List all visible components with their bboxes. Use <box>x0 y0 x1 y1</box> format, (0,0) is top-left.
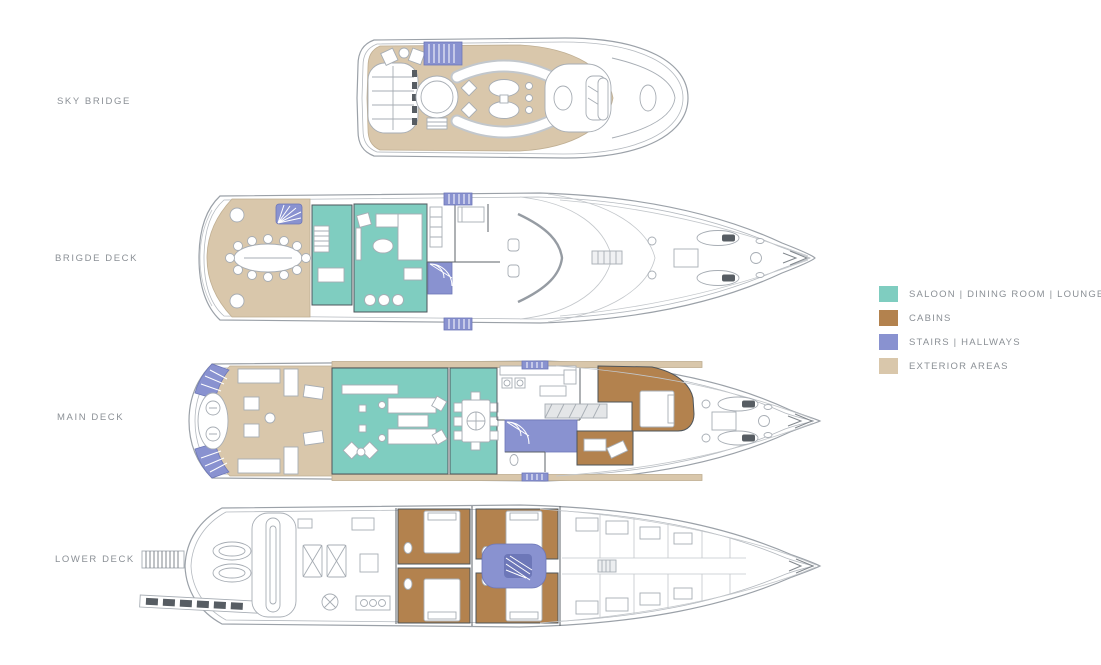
jacuzzi-icon <box>416 76 458 118</box>
deck-plans-svg <box>0 0 1101 665</box>
sky-bridge-stairs-area <box>424 42 462 65</box>
main-saloon-room <box>332 368 448 474</box>
lower-deck-plan <box>140 505 820 627</box>
yacht-deck-plans-page: SKY BRIDGE BRIGDE DECK MAIN DECK LOWER D… <box>0 0 1101 665</box>
main-deck-plan <box>189 361 820 481</box>
sky-bridge-plan <box>357 38 688 158</box>
brigde-lounge-room <box>312 205 352 305</box>
brigde-deck-plan <box>199 193 815 330</box>
